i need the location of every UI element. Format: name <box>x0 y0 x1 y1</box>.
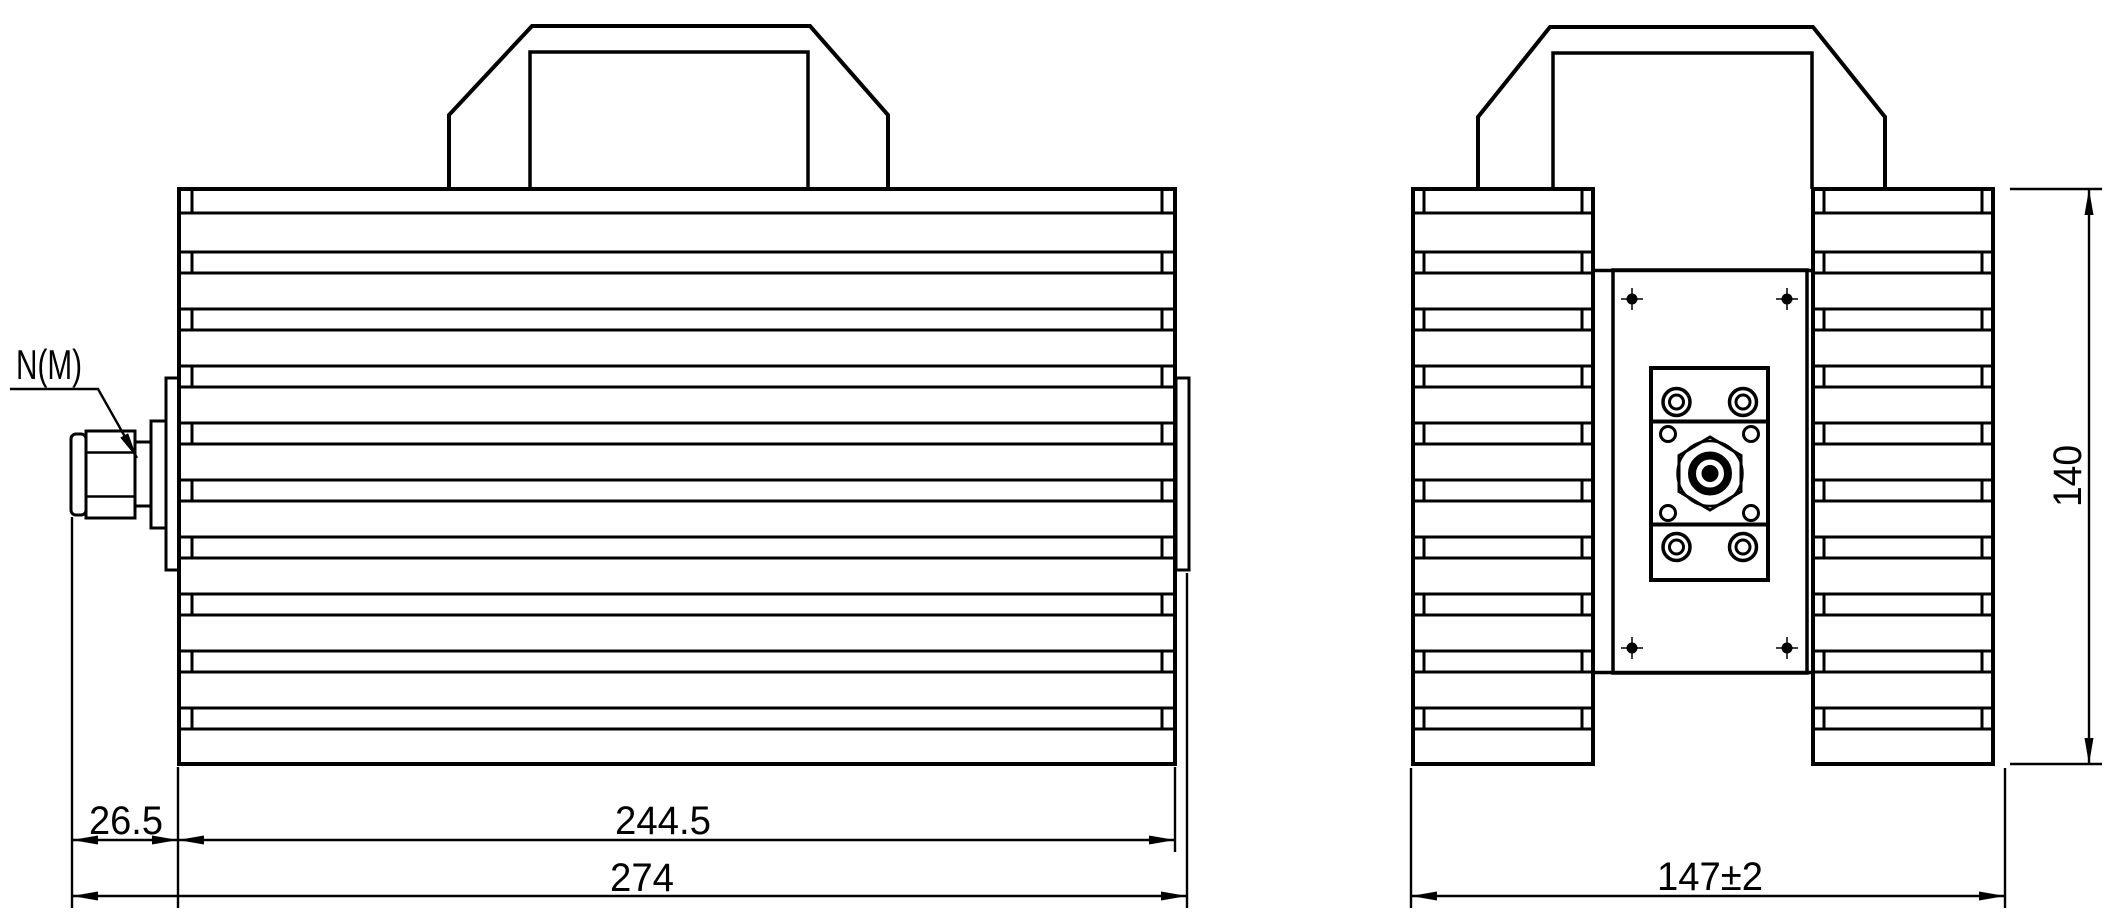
rf-load-technical-drawing: N(M) 26.5 244.5 274 <box>0 0 2119 917</box>
heatsink-fins-side <box>181 191 1173 729</box>
connector-cap <box>71 434 86 515</box>
dimension-overall-width: 147±2 <box>1411 768 2005 908</box>
connector-label: N(M) <box>16 341 82 388</box>
dim-text-overall-length: 274 <box>610 856 674 900</box>
side-body <box>179 189 1175 764</box>
fin-stack-right <box>1813 189 1993 764</box>
heatsink-fins-end-left <box>1414 191 1592 729</box>
side-view: N(M) 26.5 244.5 274 <box>10 26 1189 908</box>
fin-stack-left <box>1413 189 1593 764</box>
rear-plate-side <box>1176 378 1189 570</box>
center-pin <box>1702 465 1719 482</box>
leader-line <box>10 389 137 458</box>
mounting-plate <box>1593 270 1813 673</box>
dim-text-connector-offset: 26.5 <box>89 799 163 843</box>
screw-icon <box>1621 637 1643 659</box>
dim-text-overall-width: 147±2 <box>1657 855 1763 899</box>
screw-icon <box>1776 637 1798 659</box>
n-connector-side <box>71 378 179 570</box>
dimension-overall-height: 140 <box>2010 189 2102 764</box>
end-handle <box>1478 27 1885 189</box>
n-connector-face <box>1651 368 1768 580</box>
screw-icon <box>1621 288 1643 310</box>
side-handle <box>449 26 888 189</box>
connector-hex-face <box>1678 437 1743 510</box>
connector-label-group: N(M) <box>10 341 137 458</box>
connector-flange <box>151 421 166 528</box>
heatsink-fins-end-right <box>1814 191 1992 729</box>
end-view: 147±2 140 <box>1411 27 2102 908</box>
dim-text-body-length: 244.5 <box>615 799 711 843</box>
dimension-connector-offset: 26.5 <box>72 517 1175 908</box>
dim-text-overall-height: 140 <box>2046 445 2090 507</box>
technical-drawing-page: N(M) 26.5 244.5 274 <box>0 0 2119 917</box>
screw-icon <box>1776 288 1798 310</box>
dimension-overall-length: 274 <box>72 573 1187 908</box>
connector-neck <box>135 442 151 506</box>
